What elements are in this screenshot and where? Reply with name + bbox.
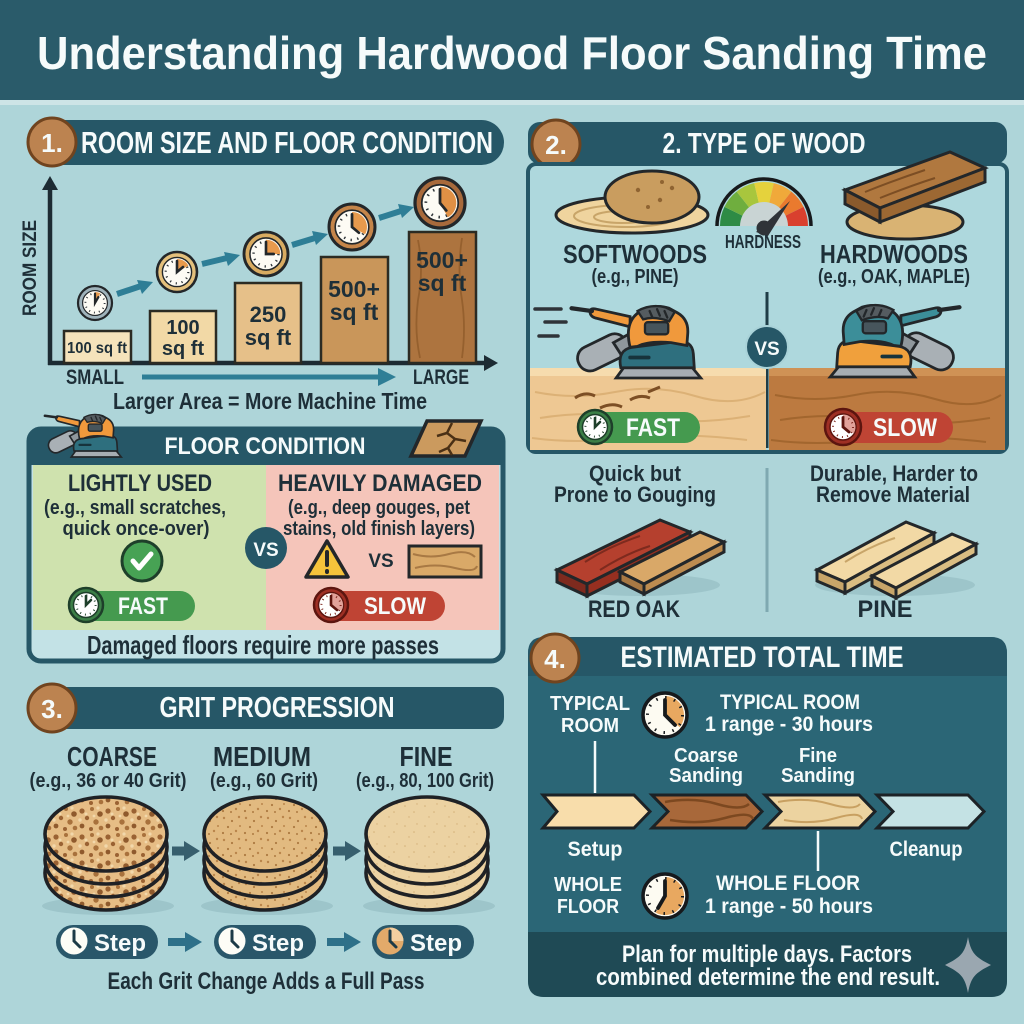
svg-text:GRIT PROGRESSION: GRIT PROGRESSION [160, 692, 395, 724]
svg-text:Remove Material: Remove Material [816, 482, 970, 507]
svg-text:FLOOR CONDITION: FLOOR CONDITION [165, 433, 366, 460]
svg-text:VS: VS [253, 540, 278, 561]
svg-text:FLOOR: FLOOR [557, 896, 619, 918]
svg-text:SOFTWOODS: SOFTWOODS [563, 239, 707, 269]
svg-text:4.: 4. [544, 644, 566, 674]
svg-text:ESTIMATED TOTAL TIME: ESTIMATED TOTAL TIME [621, 641, 904, 674]
svg-text:SLOW: SLOW [873, 414, 937, 442]
svg-text:Coarse: Coarse [674, 745, 738, 767]
svg-text:quick once-over): quick once-over) [63, 518, 210, 540]
svg-text:(e.g., OAK, MAPLE): (e.g., OAK, MAPLE) [818, 266, 970, 288]
svg-text:Step: Step [410, 930, 462, 957]
svg-text:stains, old finish layers): stains, old finish layers) [283, 518, 475, 540]
svg-text:Sanding: Sanding [781, 765, 855, 787]
svg-text:VS: VS [368, 551, 393, 572]
svg-text:1 range - 50 hours: 1 range - 50 hours [705, 895, 873, 918]
svg-text:FAST: FAST [118, 593, 168, 620]
svg-text:WHOLE: WHOLE [554, 874, 622, 896]
svg-text:sq ft: sq ft [162, 338, 205, 360]
svg-text:3.: 3. [41, 694, 63, 724]
svg-text:250: 250 [250, 302, 287, 327]
svg-text:Each Grit Change Adds a Full P: Each Grit Change Adds a Full Pass [108, 968, 425, 995]
svg-text:FAST: FAST [626, 414, 680, 442]
svg-text:Step: Step [94, 930, 146, 957]
svg-text:Sanding: Sanding [669, 765, 743, 787]
svg-text:WHOLE FLOOR: WHOLE FLOOR [716, 872, 860, 895]
svg-text:HEAVILY DAMAGED: HEAVILY DAMAGED [278, 470, 482, 497]
svg-text:FINE: FINE [400, 741, 453, 772]
svg-text:(e.g., 80, 100 Grit): (e.g., 80, 100 Grit) [356, 770, 494, 792]
svg-text:COARSE: COARSE [67, 741, 157, 772]
svg-text:combined determine the end res: combined determine the end result. [596, 964, 940, 991]
svg-text:(e.g., 60 Grit): (e.g., 60 Grit) [210, 770, 318, 792]
svg-text:Setup: Setup [568, 838, 623, 861]
svg-text:(e.g., PINE): (e.g., PINE) [592, 266, 679, 288]
svg-text:SLOW: SLOW [364, 593, 426, 620]
svg-text:SMALL: SMALL [66, 366, 124, 389]
svg-text:sq ft: sq ft [245, 325, 292, 350]
svg-text:TYPICAL ROOM: TYPICAL ROOM [720, 691, 860, 714]
svg-text:ROOM SIZE: ROOM SIZE [20, 220, 41, 316]
svg-text:ROOM SIZE AND FLOOR CONDITION: ROOM SIZE AND FLOOR CONDITION [81, 125, 493, 160]
svg-text:(e.g., small scratches,: (e.g., small scratches, [44, 497, 226, 519]
svg-text:Cleanup: Cleanup [890, 838, 963, 861]
svg-text:ROOM: ROOM [561, 715, 619, 737]
svg-text:Fine: Fine [799, 745, 837, 767]
svg-text:Understanding Hardwood Floor S: Understanding Hardwood Floor Sanding Tim… [37, 27, 987, 79]
svg-text:sq ft: sq ft [330, 299, 379, 325]
svg-text:LARGE: LARGE [413, 366, 469, 389]
svg-text:VS: VS [754, 339, 779, 360]
svg-text:1.: 1. [41, 128, 63, 158]
svg-text:HARDWOODS: HARDWOODS [820, 239, 968, 269]
svg-text:(e.g., 36 or 40 Grit): (e.g., 36 or 40 Grit) [30, 770, 187, 792]
svg-text:2. TYPE OF WOOD: 2. TYPE OF WOOD [663, 128, 866, 160]
svg-text:PINE: PINE [858, 596, 913, 623]
svg-text:100: 100 [166, 317, 199, 339]
svg-text:RED OAK: RED OAK [588, 596, 681, 623]
svg-text:LIGHTLY USED: LIGHTLY USED [68, 470, 212, 497]
svg-text:Larger Area = More Machine Tim: Larger Area = More Machine Time [113, 388, 427, 414]
svg-text:Damaged floors require more pa: Damaged floors require more passes [87, 630, 439, 660]
svg-text:HARDNESS: HARDNESS [725, 232, 801, 252]
svg-text:2.: 2. [545, 130, 567, 160]
svg-text:MEDIUM: MEDIUM [213, 741, 311, 772]
svg-text:(e.g., deep gouges, pet: (e.g., deep gouges, pet [288, 497, 470, 519]
svg-text:Step: Step [252, 930, 304, 957]
svg-text:100 sq ft: 100 sq ft [67, 340, 128, 357]
svg-text:sq ft: sq ft [418, 270, 467, 296]
svg-text:TYPICAL: TYPICAL [550, 693, 630, 715]
svg-text:Prone to Gouging: Prone to Gouging [554, 482, 716, 507]
svg-text:1 range - 30 hours: 1 range - 30 hours [705, 713, 873, 736]
